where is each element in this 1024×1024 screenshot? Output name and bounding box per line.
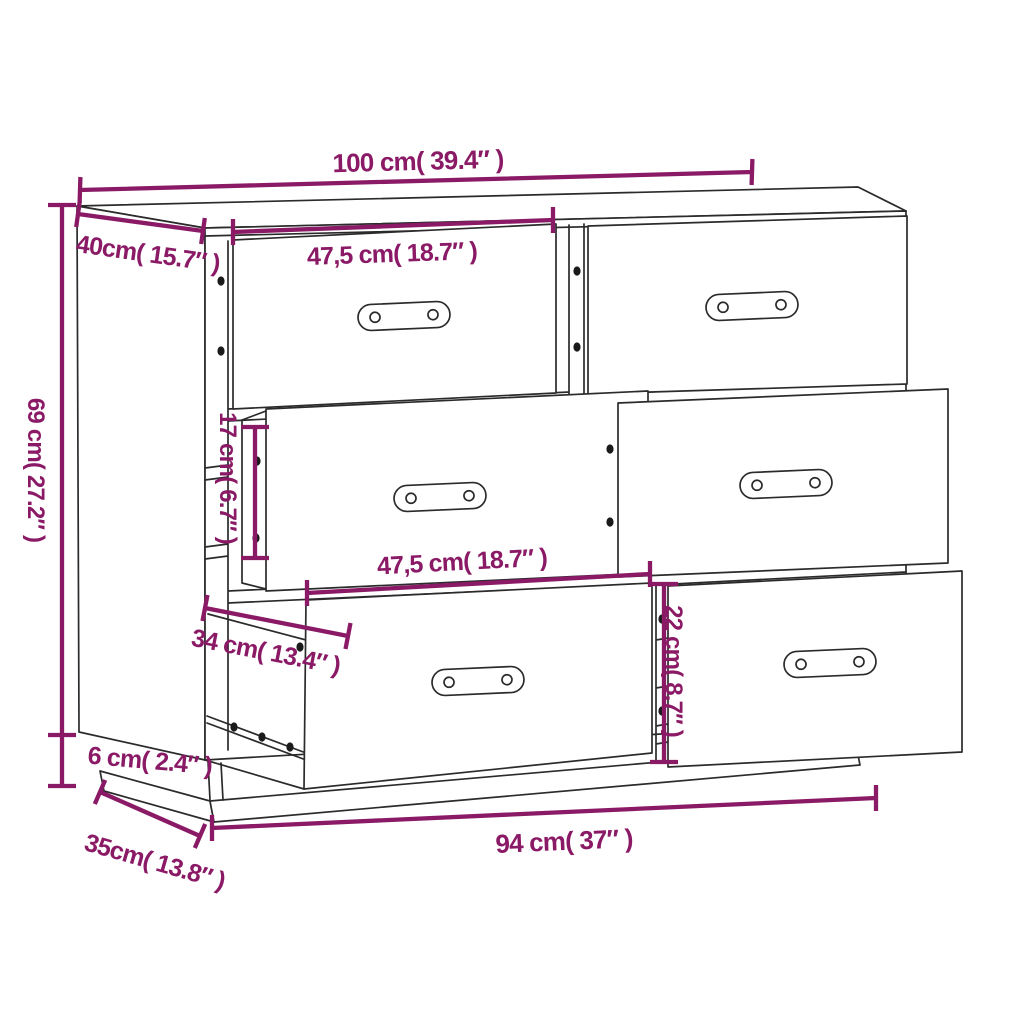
product-dimension-diagram: 100 cm( 39.4″ ) 40cm( 15.7″ ) 69 cm( 27.… [0,0,1024,1024]
dim-label-top-drawer-width: 47,5 cm( 18.7″ ) [307,237,478,271]
drawer-handle [739,469,832,499]
left-side-panel [77,206,205,760]
dim-label-base-width: 94 cm( 37″ ) [495,823,634,859]
drawer-handle [393,482,486,512]
dim-label-overall-height: 69 cm( 27.2″ ) [22,398,49,542]
drawer-handle [357,301,450,331]
dim-label-bottom-drawer-front-height: 22 cm( 8.7″ ) [660,605,687,737]
diagram-canvas: 100 cm( 39.4″ ) 40cm( 15.7″ ) 69 cm( 27.… [0,0,1024,1024]
dim-overall-height: 69 cm( 27.2″ ) [22,205,76,735]
drawer-handle [705,291,798,321]
carcass-bottom-edge [205,760,304,789]
dim-label-overall-width: 100 cm( 39.4″ ) [332,144,504,178]
drawer-handle [431,666,524,696]
dim-label-middle-drawer-front-height: 17 cm( 6.7″ ) [214,412,241,544]
drawer-handle [783,648,876,678]
dim-label-base-depth: 35cm( 13.8″ ) [81,829,228,896]
sideboard-line-drawing [77,187,962,822]
